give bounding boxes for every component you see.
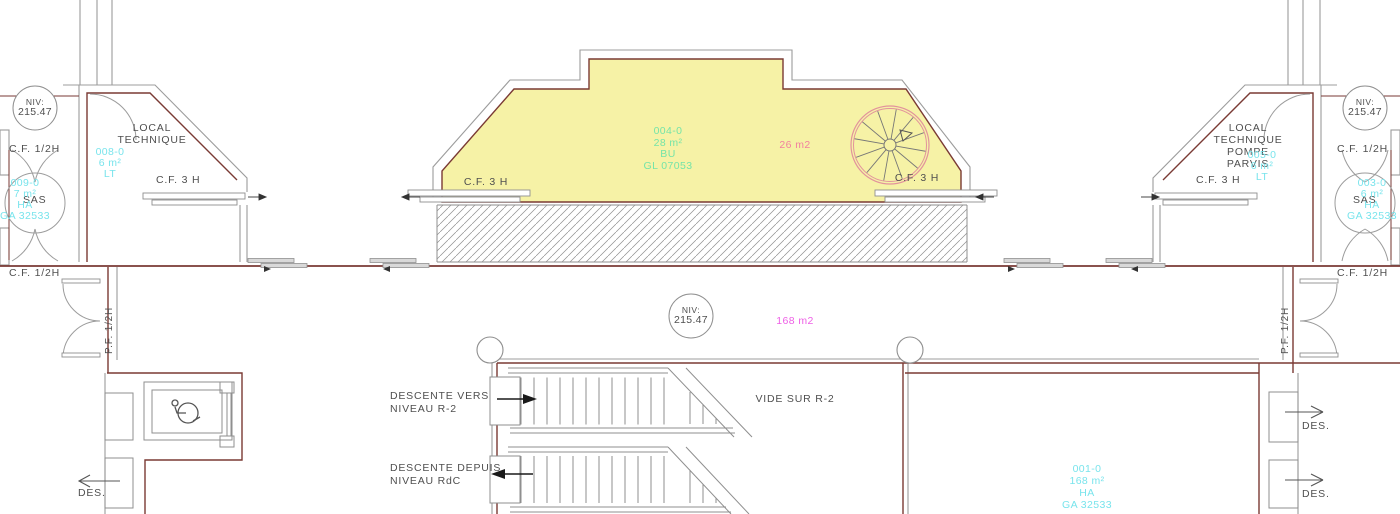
room-tag-sas-left: 009-07 m² HAGA 32533 xyxy=(0,178,72,222)
floor-plan-linework xyxy=(0,0,1400,514)
des-label-right-2: DES. xyxy=(1302,488,1330,500)
level-marker-center: NIV:215.47 xyxy=(669,305,713,325)
fire-rating-yellow-left: C.F. 3 H xyxy=(458,176,514,188)
room-tag-lt-left: 008-06 m² LT xyxy=(63,147,157,180)
stair-flight-lower xyxy=(490,447,749,514)
des-label-left: DES. xyxy=(78,487,106,499)
des-label-right-1: DES. xyxy=(1302,420,1330,432)
room-label-local-technique-left: LOCAL TECHNIQUE xyxy=(102,122,202,146)
stair-note-down: DESCENTE VERS NIVEAU R-2 xyxy=(390,390,489,415)
room-tag-bu: 004-028 m² BUGL 07053 xyxy=(618,126,718,172)
pf-rating-right: P.F. 1/2H xyxy=(1279,282,1292,354)
area-note-168: 168 m2 xyxy=(765,316,825,327)
fire-rating-right-bottom: C.F. 1/2H xyxy=(1337,267,1388,279)
floor-plan-canvas: NIV:215.47 NIV:215.47 NIV:215.47 C.F. 1/… xyxy=(0,0,1400,514)
fire-rating-room-left: C.F. 3 H xyxy=(156,174,200,186)
wheelchair-icon xyxy=(172,400,200,423)
room-tag-hall: 001-0168 m² HAGA 32533 xyxy=(1037,463,1137,511)
level-marker-right: NIV:215.47 xyxy=(1343,97,1387,117)
fire-rating-left-bottom: C.F. 1/2H xyxy=(9,267,60,279)
pf-rating-left: P.F. 1/2H xyxy=(103,282,116,354)
area-note-26: 26 m2 xyxy=(765,140,825,151)
stair-flight-upper xyxy=(490,368,752,437)
level-marker-left: NIV:215.47 xyxy=(13,97,57,117)
room-tag-sas-right: 003-06 m² HAGA 32533 xyxy=(1325,178,1400,222)
hatched-zone xyxy=(437,205,967,262)
void-label: VIDE SUR R-2 xyxy=(745,393,845,405)
fire-rating-yellow-right: C.F. 3 H xyxy=(889,172,945,184)
elevator xyxy=(144,382,234,447)
stair-note-from: DESCENTE DEPUIS NIVEAU RdC xyxy=(390,462,501,487)
fire-rating-left-top: C.F. 1/2H xyxy=(9,143,60,155)
fire-rating-right-top: C.F. 1/2H xyxy=(1337,143,1388,155)
fire-rating-room-right: C.F. 3 H xyxy=(1196,174,1240,186)
